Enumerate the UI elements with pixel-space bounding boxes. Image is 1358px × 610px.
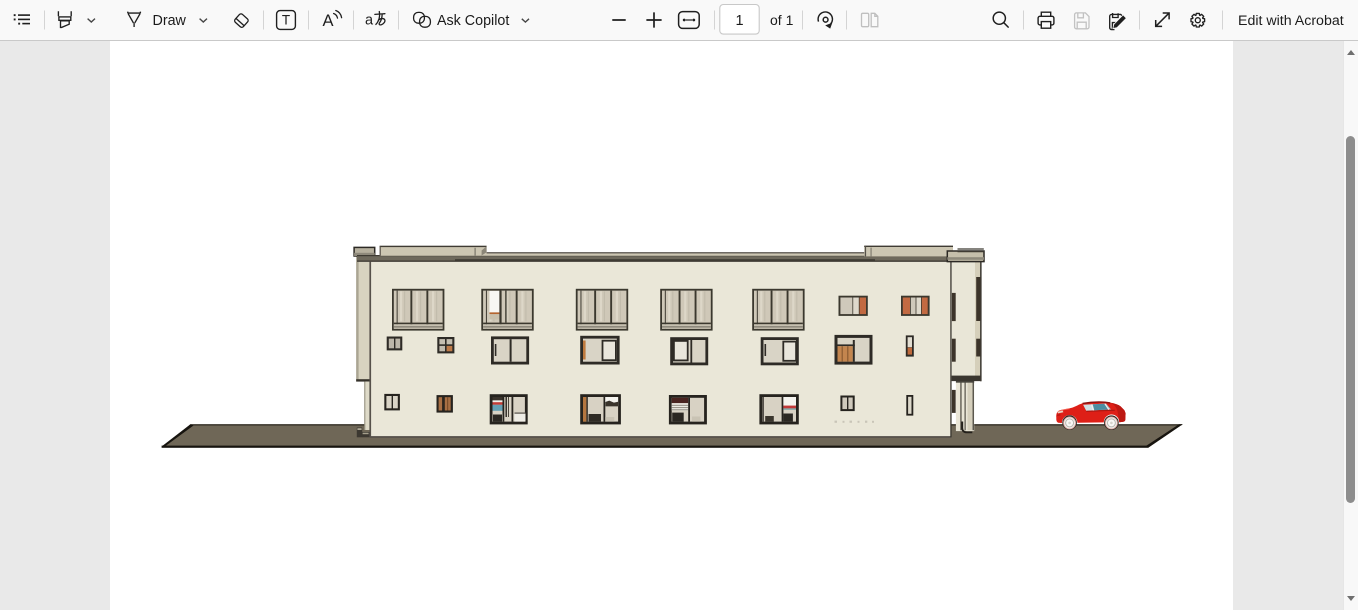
svg-text:Edit with Acrobat: Edit with Acrobat xyxy=(1238,13,1344,29)
svg-text:T: T xyxy=(282,13,290,28)
svg-text:of 1: of 1 xyxy=(770,12,794,28)
svg-text:1: 1 xyxy=(735,13,743,29)
svg-text:a: a xyxy=(365,13,374,29)
svg-text:Draw: Draw xyxy=(153,13,187,29)
svg-text:A: A xyxy=(323,12,334,30)
svg-text:Ask Copilot: Ask Copilot xyxy=(437,13,509,29)
